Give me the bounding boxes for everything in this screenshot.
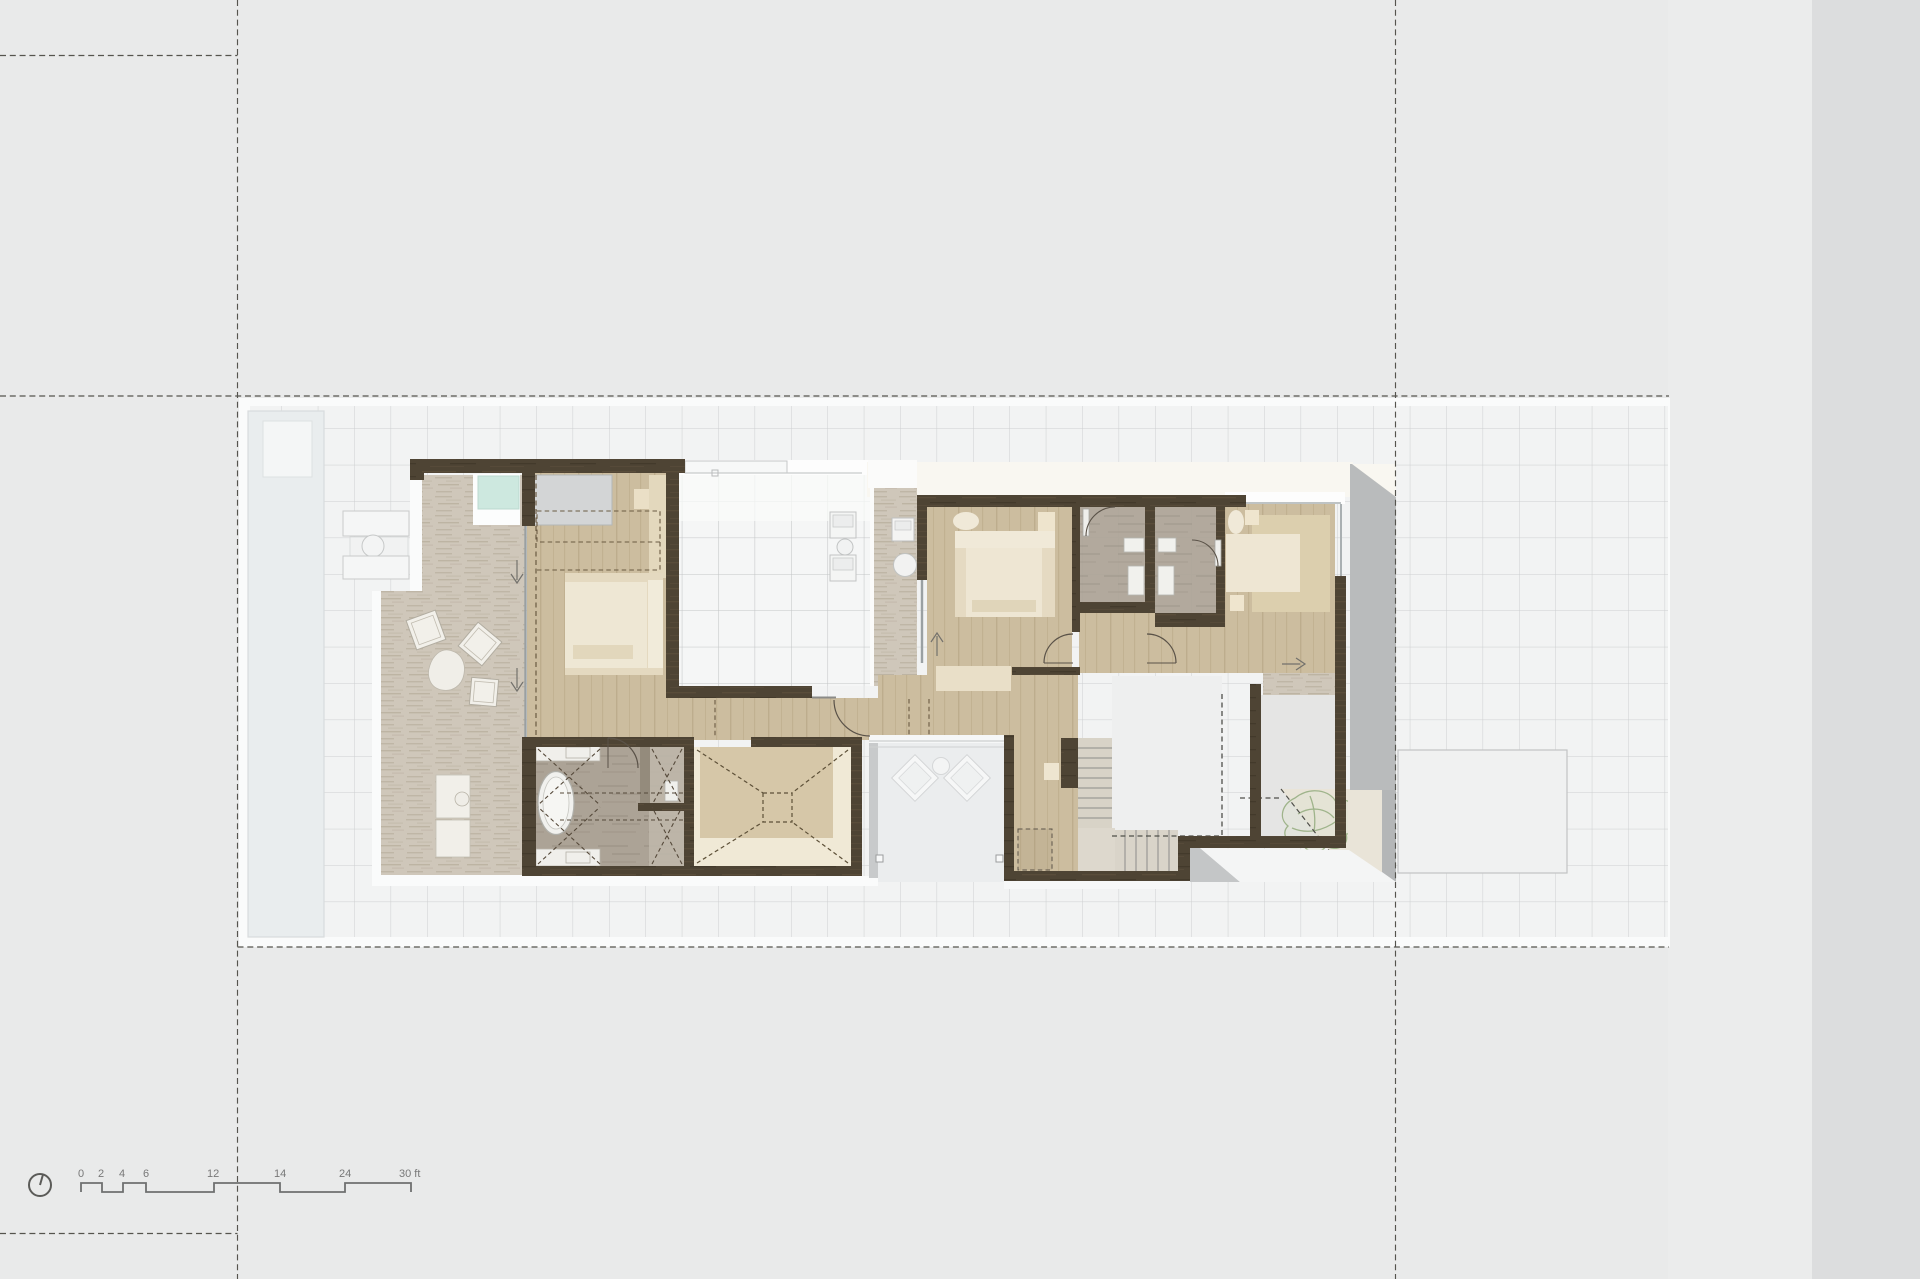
- svg-text:24: 24: [339, 1168, 351, 1180]
- svg-text:0: 0: [78, 1168, 84, 1180]
- svg-text:2: 2: [98, 1168, 104, 1180]
- svg-text:14: 14: [274, 1168, 286, 1180]
- svg-text:12: 12: [207, 1168, 219, 1180]
- svg-text:30 ft: 30 ft: [399, 1168, 420, 1180]
- svg-text:6: 6: [143, 1168, 149, 1180]
- svg-text:4: 4: [119, 1168, 125, 1180]
